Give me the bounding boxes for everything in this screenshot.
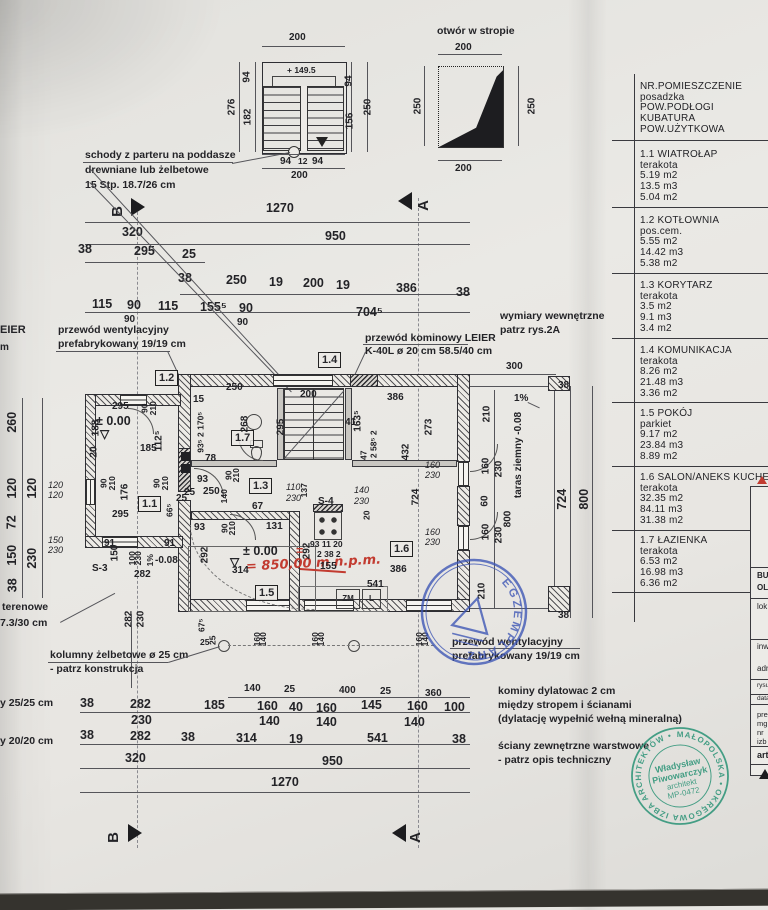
leader-line [89,182,292,392]
dim-text: 38 [456,286,470,299]
internal-dims-note1: wymiary wewnętrzne [500,311,604,322]
leader-line [83,162,233,163]
stairs-note-line1: schody z parteru na poddasze [85,150,236,161]
columns-note2: - patrz konstrukcja [50,664,143,675]
dim-text: 94 [243,71,253,82]
dim-line [424,66,425,146]
dim-text: 60 [481,495,491,506]
dim-text: 200 [291,171,308,181]
section-arrow-icon [398,192,412,210]
dim-text: 800 [503,511,513,528]
window [458,526,469,550]
room-usable: 8.89 m2 [640,452,766,463]
dim-text: 155 [320,562,337,572]
dim-line [180,294,470,295]
green-stamp: MAŁOPOLSKA • OKRĘGOWA IZBA ARCHITEKTÓW •… [618,714,741,837]
dim-text: 90 [127,299,141,312]
dim-text: 67⁵ [197,619,206,632]
dim-text: 1270 [271,776,299,789]
dim-text: 210 [232,468,241,482]
dim-text: 94 [312,157,323,167]
dim-text: 1% [146,554,155,566]
dim-text: 90 [237,318,248,328]
dim-text: 163⁵ [354,410,364,431]
wall-segment [85,394,96,548]
dim-text: 292 [200,547,210,564]
legend-border [634,74,635,622]
dim-line [42,398,43,598]
room-label-1-6: 1.6 [390,541,413,557]
dim-text: 131 [266,522,283,532]
dim-text: 320 [125,752,146,765]
dim-text: 295 [112,402,129,412]
dim-text: 93 [197,475,208,485]
dim-text: 1270 [266,202,294,215]
dim-text: 432 [401,444,411,461]
vent-note-line1: przewód wentylacyjny [58,325,169,336]
dim-text: 94 [280,157,291,167]
legend-room: 1.3 KORYTARZ terakota 3.5 m2 9.1 m3 3.4 … [640,281,766,335]
room-usable: 5.04 m2 [640,193,766,204]
dim-text: 20 [362,511,371,520]
dim-text: 541 [367,580,384,590]
columns-note1: kolumny żelbetowe ø 25 cm [50,650,188,661]
window [273,375,333,386]
dim-text: 250 [203,487,220,497]
dim-text: 150 [110,545,120,562]
dim-text: 145 [361,699,382,712]
dim-text: 38 [7,578,20,592]
room-usable: 3.36 m2 [640,389,766,400]
dim-text: 260 [6,412,19,433]
dim-text: 25 [182,248,196,261]
room-label-1-2: 1.2 [155,370,178,386]
dim-text: 137 [300,483,309,497]
margin-note1: y 25/25 cm [0,698,53,709]
dim-line [518,66,519,146]
chimney-note-line2: K-40L ø 20 cm 58.5/40 cm [365,346,492,357]
legend-header-line: POW.UŻYTKOWA [640,125,766,136]
dim-text: 386 [387,393,404,403]
title-block-text: inw [757,643,768,651]
terrain-steps-note2: 7.3/30 cm [0,618,47,629]
wall-segment [457,374,470,462]
title-block-line [751,764,768,765]
title-block-text: pre [757,711,768,719]
chimney-flue [350,374,378,387]
dim-text: 19 [289,733,303,746]
dim-text: 230 [134,551,143,565]
dim-text: 230 [494,461,504,478]
level-mark: ± 0.00 [243,545,278,558]
room-usable: 5.38 m2 [640,259,766,270]
dim-text: 230 [494,527,504,544]
dim-text: 93 [194,523,205,533]
terrace-edge [470,386,555,387]
dim-text: 160 [407,700,428,713]
dim-text: 38 [80,729,94,742]
title-block-line [751,639,768,640]
title-block-text: nr [757,729,764,737]
title-block-text: BU [757,572,768,580]
dim-text: 210 [228,521,237,535]
dim-text: 100 [444,701,465,714]
dim-text: 386 [396,282,417,295]
detail-ref-s4: S-4 [318,497,334,507]
room-label-1-4: 1.4 [318,352,341,368]
dim-text: 230 [354,497,369,506]
dim-text: 230 [425,471,440,480]
title-block-line [751,746,768,747]
dim-text: 273 [424,419,434,436]
dim-text: 295 [112,510,129,520]
section-arrow-icon [131,198,145,216]
dim-text: 250 [527,98,537,115]
section-arrow-icon [128,824,142,842]
dim-text: 200 [303,277,324,290]
dim-text: 66⁵ [165,504,174,517]
window [458,462,469,486]
title-block-text: OL [757,584,768,592]
dim-text: 230 [48,546,63,555]
dim-line [438,54,502,55]
dim-text: 112⁵ [154,431,164,452]
dim-text: 360 [425,689,442,699]
dim-text: 72 [6,515,19,529]
dim-text: 188 [91,420,101,437]
dim-text: 120 [26,478,39,499]
dim-text: 282 [124,611,134,628]
dim-text: 210 [108,476,117,490]
dim-text: 140 [259,715,280,728]
dim-text: 38 [452,733,466,746]
dim-line [85,312,470,313]
internal-dims-note2: patrz rys.2A [500,325,560,336]
dim-text: 250 [413,98,423,115]
title-block-text: lok [757,603,767,611]
dim-text: 25 [184,488,195,498]
partition-wall [191,460,277,467]
dim-text: 268 [240,416,250,433]
flue-opening [181,452,190,461]
dim-text: 19 [269,276,283,289]
dim-text: 2 58⁵ 2 [370,430,379,458]
wall-segment [457,486,470,526]
window [86,479,95,505]
dim-text: 704⁵ [356,306,383,319]
title-block-line [751,679,768,680]
dim-text: 94 [345,75,355,86]
ceiling-opening-detail: otwór w stropie 200 250 250 200 [400,0,600,200]
dim-text: 230 [26,548,39,569]
dim-text: 38 [78,243,92,256]
dim-line [262,168,345,169]
column-circle-icon [348,640,360,652]
dim-text: 160 [481,458,491,475]
stove-icon [314,512,342,540]
dim-text: 38 [80,697,94,710]
dishwasher-box: ZM [336,589,360,609]
title-block-text: data: [757,696,768,703]
dim-line [570,386,571,618]
legend-separator [612,140,768,141]
legend-separator [612,273,768,274]
stairs-detail: 200 + 149.5 94 182 276 94 156 250 94 12 … [0,0,400,200]
flue-opening [181,464,190,473]
dim-text: 250 [226,383,243,393]
partition-wall [352,460,457,467]
dim-text: 210 [482,406,492,423]
leader-line [363,344,468,345]
dim-text: 38 [558,611,569,621]
legend-room: 1.4 KOMUNIKACJA terakota 8.26 m2 21.48 m… [640,346,766,400]
legend-room: 1.7 ŁAZIENKA terakota 6.53 m2 16.98 m3 6… [640,536,766,590]
title-block-text: adr [757,665,768,673]
dim-text: 115 [92,298,112,311]
dim-line [438,160,502,161]
dim-text: 93⁵ 2 170⁵ [196,412,205,453]
dim-line [80,744,470,745]
stairs-divider [300,86,308,151]
dim-text: 541 [367,732,388,745]
dim-text: 140 [354,486,369,495]
legend-room: 1.1 WIATROŁAP terakota 5.19 m2 13.5 m3 5… [640,150,766,204]
opening-outline [438,66,504,148]
title-block: BU OL lok inw adr rysu data: pre mg nr i… [750,486,768,776]
dim-line [255,62,256,152]
dim-text: 120 [48,491,63,500]
dim-text: 93 11 20 [310,540,343,549]
dim-text: 800 [578,489,591,510]
dim-text: 250 [363,99,373,116]
dim-text: 19 [336,279,350,292]
dim-text: 276 [227,99,237,116]
title-block-text: mg [757,720,767,728]
dim-text: 140 [316,716,337,729]
room-usable: 6.36 m2 [640,579,766,590]
dim-text: 230 [131,714,152,727]
legend-room: 1.5 POKÓJ parkiet 9.17 m2 23.84 m3 8.89 … [640,409,766,463]
chimney-dilatation-note3: (dylatację wypełnić wełną mineralną) [498,714,682,725]
photo-table-edge [0,889,768,910]
dim-text: 200 [300,390,317,400]
chimney-dilatation-note2: między stropem i ścianami [498,700,632,711]
dim-text: 1% [514,394,528,404]
dim-text: 140 [244,684,261,694]
dim-line [262,46,345,47]
legend-header: NR.POMIESZCZENIE posadzka POW.PODŁOGI KU… [640,82,766,136]
stairs-note-line3: 15 Stp. 18.7/26 cm [85,180,175,191]
dim-text: 250 [226,274,247,287]
level-label: + 149.5 [287,66,316,75]
terrace-label: taras ziemny -0.08 [514,412,524,498]
dim-text: 282 [130,730,151,743]
edge-label: EIER [0,325,26,336]
dim-text: 282 [130,698,151,711]
dim-text: 950 [322,755,343,768]
chimney-dilatation-note1: kominy dylatowac 2 cm [498,686,615,697]
title-block-line [751,598,768,599]
dim-text: -0.08 [155,556,178,566]
room-usable: 31.38 m2 [640,516,766,527]
dim-text: 400 [339,686,356,696]
opening-fill [439,67,503,147]
section-line-a [418,198,419,848]
dim-line [85,222,470,223]
stairs-note-line2: drewniane lub żelbetowe [85,165,209,176]
room-label-1-3: 1.3 [249,478,272,494]
dim-text: 160 [481,524,491,541]
dim-line [239,62,240,152]
legend-separator [612,466,768,467]
leader-line [48,662,168,663]
dim-text: 115 [158,300,178,313]
legend-separator [612,338,768,339]
section-arrow-icon [392,824,406,842]
dim-text: 2 38 2 [317,550,341,559]
legend-separator [612,530,768,531]
dim-line [80,792,470,793]
terrain-steps-note1: terenowe [2,602,48,613]
dim-text: 950 [325,230,346,243]
dim-text: 176 [120,484,130,501]
legend-room: 1.2 KOTŁOWNIA pos.cem. 5.55 m2 14.42 m3 … [640,216,766,270]
dim-text: 90 [239,302,253,315]
leader-line [56,351,170,352]
dim-text: 314 [232,566,249,576]
dim-text: 150 [6,545,19,566]
detail-title: otwór w stropie [437,26,515,37]
dim-text: 38 [558,381,569,391]
dim-line [470,374,556,375]
dim-text: 160 [425,461,440,470]
dim-text: 25 [208,636,217,645]
dim-text: 67 [252,502,263,512]
dim-text: 185 [204,699,225,712]
title-block-line [751,567,768,568]
dim-text: 200 [455,164,472,174]
room-label-1-7: 1.7 [231,430,254,446]
dim-text: 120 [6,478,19,499]
dim-text: 20 [90,446,100,457]
section-marker-b: B [106,832,121,843]
dim-text: 300 [506,362,523,372]
dim-text: 140 [220,489,229,503]
dim-text: 25 [380,687,391,697]
dim-text: 724 [556,489,569,510]
room-label-1-5: 1.5 [255,585,278,601]
section-marker-a: A [408,832,423,843]
legend-separator [612,592,768,593]
dim-text: 724 [411,489,421,506]
dim-text: 314 [236,732,257,745]
chimney-note-line1: przewód kominowy LEIER [365,333,496,344]
dim-text: 210 [161,476,170,490]
leader-line [60,593,115,623]
dim-text: 78 [205,454,216,464]
dim-text: 40 [289,701,303,714]
dim-text: 295 [276,419,286,436]
dim-text: 386 [390,565,407,575]
dim-line [22,398,23,598]
room-label-1-1: 1.1 [138,496,161,512]
dim-line [80,768,470,769]
title-block-text: izb [757,738,767,746]
margin-note2: y 20/20 cm [0,736,53,747]
dim-text: 140 [404,716,425,729]
dim-text: 182 [243,109,253,126]
stairs-arrow-down-icon [316,137,328,147]
section-marker-a: A [416,200,431,211]
vent-note-line2: prefabrykowany 19/19 cm [58,339,186,350]
dim-text: 230 [136,611,146,628]
edge-label: m [0,343,9,353]
title-block-triangle-icon [759,769,768,779]
title-block-text: rysu [757,683,768,690]
title-block-text: art [757,751,768,760]
dim-text: 38 [181,731,195,744]
title-block-line [751,704,768,705]
dim-text: 47 [359,451,368,460]
dim-line [592,386,593,618]
dim-text: 12 [298,157,307,166]
dim-text: 156 [345,113,355,130]
dim-text: 200 [289,33,306,43]
slope-arrow [528,402,540,408]
legend-room: 1.6 SALON/ANEKS KUCHENNY terakota 32.35 … [640,473,766,527]
room-usable: 3.4 m2 [640,324,766,335]
dim-text: 91 [164,539,175,549]
dim-line [85,262,205,263]
dim-text: 150 [48,536,63,545]
leader-line [89,168,290,387]
leader-dotted [228,645,434,646]
dim-text: 15 [193,395,204,405]
legend-separator [612,207,768,208]
external-walls-note2: - patrz opis techniczny [498,755,611,766]
dim-text: 160 [425,528,440,537]
dim-text: 25 [284,685,295,695]
legend-separator [612,402,768,403]
dim-text: 160 [257,700,278,713]
wall-pier [548,586,570,612]
dim-text: 200 [455,43,472,53]
detail-ref-s3: S-3 [92,564,108,574]
fridge-box: L [362,589,381,609]
dim-text: 120 [48,481,63,490]
red-revision-triangle-icon [757,476,767,484]
dim-text: 160 [316,702,337,715]
dim-text: 282 [134,570,151,580]
level-triangle-icon: ▽ [100,428,109,440]
dim-text: 210 [149,401,158,415]
